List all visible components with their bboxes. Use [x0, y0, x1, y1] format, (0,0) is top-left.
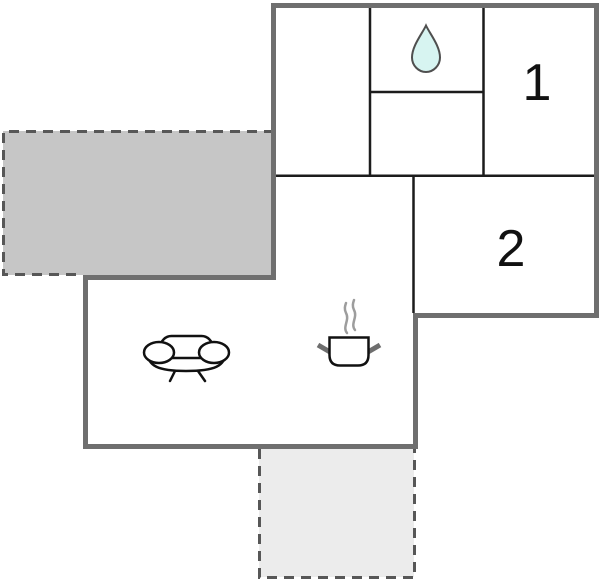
steam-line-right [353, 300, 355, 330]
floorplan-image: 1 2 [0, 0, 600, 584]
steam-line-left [345, 303, 347, 333]
terrace-bottom-fill [259, 449, 414, 577]
sofa-legs [170, 371, 205, 381]
terrace-bottom [259, 449, 415, 578]
sofa-armrest-left [144, 342, 174, 363]
terrace-side [3, 131, 274, 275]
sofa-armrest-right [199, 342, 229, 363]
floorplan-canvas: 1 2 [0, 0, 600, 584]
sofa-icon [144, 336, 229, 381]
room-hallway [276, 3, 370, 175]
cooking-pot-icon [318, 300, 380, 366]
terrace-side-fill [3, 131, 273, 275]
room-utility [370, 92, 483, 175]
room-label-bedroom-1: 1 [523, 54, 552, 112]
water-drop-shape [412, 26, 440, 73]
pot-body [330, 338, 369, 366]
room-label-bedroom-2: 2 [497, 220, 526, 278]
water-drop-icon [412, 26, 440, 73]
